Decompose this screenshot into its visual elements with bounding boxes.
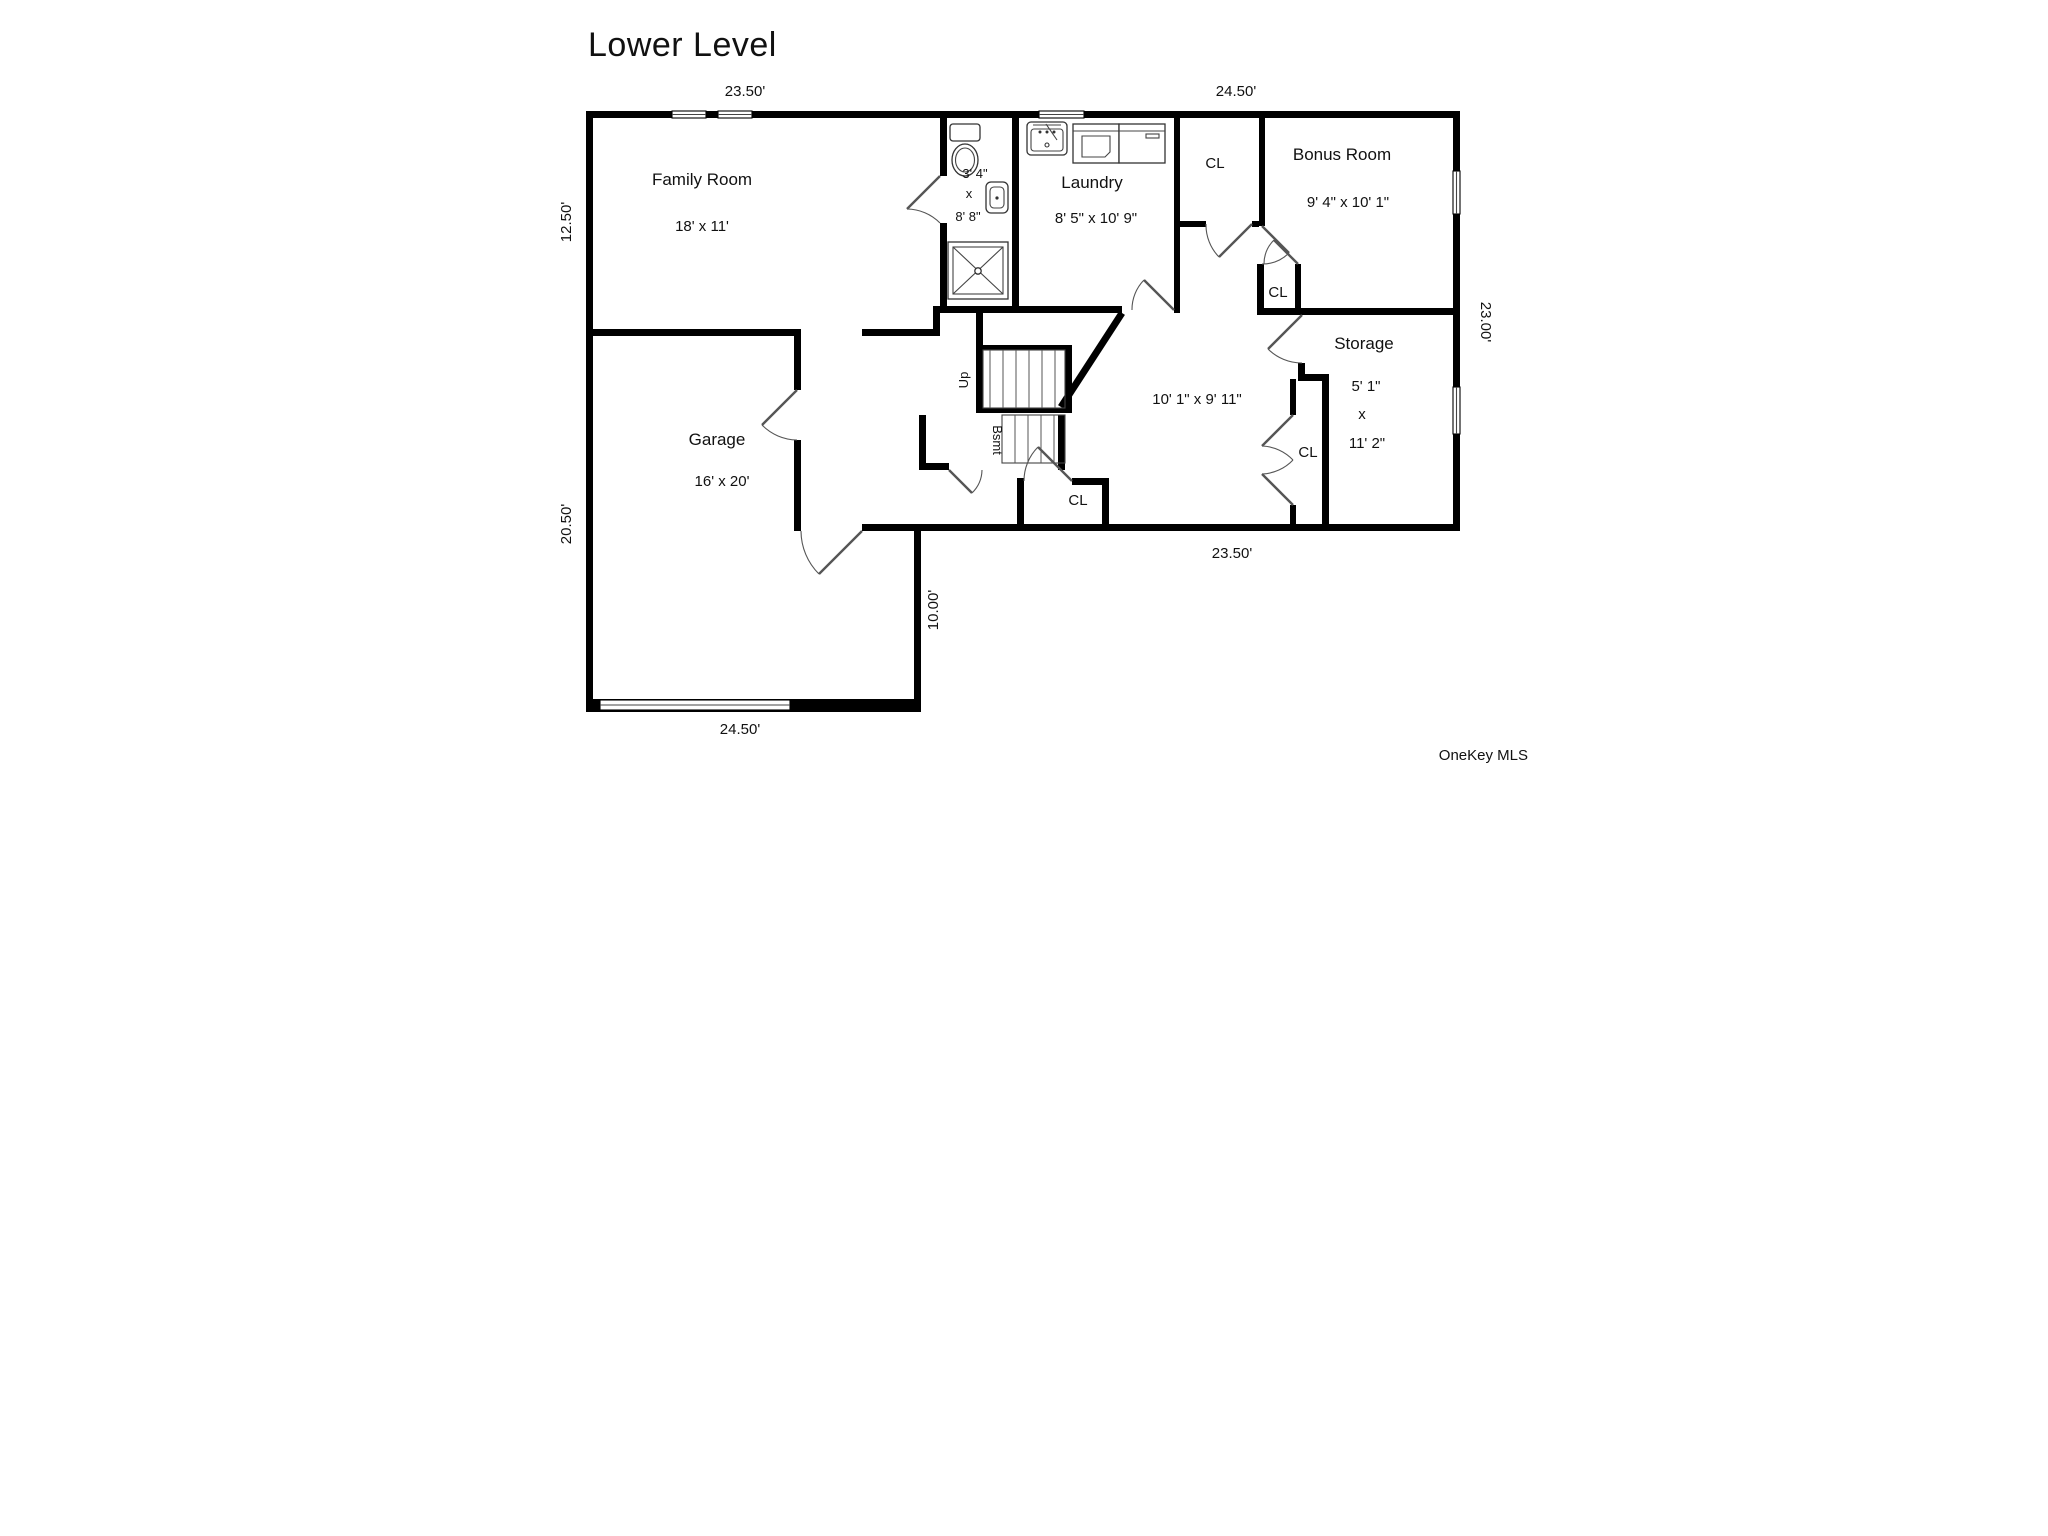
stairs-up-block	[983, 350, 1065, 408]
window-family-2	[718, 111, 752, 118]
front-door	[801, 531, 862, 574]
window-bonus	[1453, 171, 1460, 214]
dryer-icon	[1119, 124, 1165, 163]
laundry-dims-label: 8' 5" x 10' 9"	[1055, 210, 1137, 227]
bathroom-door	[907, 176, 940, 223]
cl-small-label: CL	[1268, 284, 1287, 301]
storage-dim-1-label: 5' 1"	[1351, 378, 1380, 395]
dim-vertical-10-label: 10.00'	[925, 590, 942, 631]
garage-entry-door	[762, 390, 797, 440]
cl-top-door	[1206, 224, 1252, 257]
dim-bottom-right-label: 23.50'	[1212, 545, 1253, 562]
cl-bottom-center-label: CL	[1068, 492, 1087, 509]
storage-dim-2-label: 11' 2"	[1349, 435, 1385, 452]
doors	[762, 176, 1302, 574]
garage-name-label: Garage	[689, 430, 746, 449]
bath-dim-x-label: x	[966, 186, 973, 201]
bonus-room-door	[1262, 226, 1289, 264]
floor-plan-page: Lower Level23.50'24.50'12.50'20.50'23.00…	[512, 0, 1536, 768]
laundry-name-label: Laundry	[1061, 173, 1123, 192]
hall-dims-label: 10' 1" x 9' 11"	[1152, 391, 1242, 408]
shower-icon	[948, 242, 1008, 299]
cl-bottom-right-label: CL	[1298, 444, 1317, 461]
dim-top-left-label: 23.50'	[725, 83, 766, 100]
stairs-bsmt-label: Bsmt	[990, 425, 1005, 455]
title-label: Lower Level	[588, 26, 777, 64]
family-room-name-label: Family Room	[652, 170, 752, 189]
cl-bottom-right-doors	[1262, 415, 1293, 505]
stairs-bsmt-block	[1002, 415, 1065, 463]
cl-top-label: CL	[1205, 155, 1224, 172]
vestibule-door	[949, 470, 982, 493]
dim-top-right-label: 24.50'	[1216, 83, 1257, 100]
dim-left-upper-label: 12.50'	[558, 202, 575, 243]
storage-door	[1268, 315, 1302, 363]
garage-door	[600, 700, 790, 710]
storage-dim-x-label: x	[1358, 406, 1366, 423]
garage-dims-label: 16' x 20'	[695, 473, 750, 490]
bath-dim-1-label: 3' 4"	[962, 166, 988, 181]
dim-right-label: 23.00'	[1477, 302, 1494, 343]
floor-plan-canvas: Lower Level23.50'24.50'12.50'20.50'23.00…	[512, 0, 1536, 768]
watermark-label: OneKey MLS	[1439, 747, 1528, 764]
dim-bottom-left-label: 24.50'	[720, 721, 761, 738]
window-laundry	[1039, 111, 1084, 118]
window-family-1	[672, 111, 706, 118]
bonus-name-label: Bonus Room	[1293, 145, 1391, 164]
bonus-dims-label: 9' 4" x 10' 1"	[1307, 194, 1389, 211]
dim-left-lower-label: 20.50'	[558, 504, 575, 545]
storage-name-label: Storage	[1334, 334, 1394, 353]
laundry-sink-icon	[1027, 122, 1067, 155]
stairs-up-label: Up	[956, 372, 971, 389]
laundry-door	[1132, 280, 1174, 310]
window-storage	[1453, 387, 1460, 434]
bath-dim-2-label: 8' 8"	[955, 209, 981, 224]
family-room-dims-label: 18' x 11'	[675, 218, 729, 235]
washer-icon	[1073, 124, 1119, 163]
bath-sink-icon	[986, 182, 1008, 213]
